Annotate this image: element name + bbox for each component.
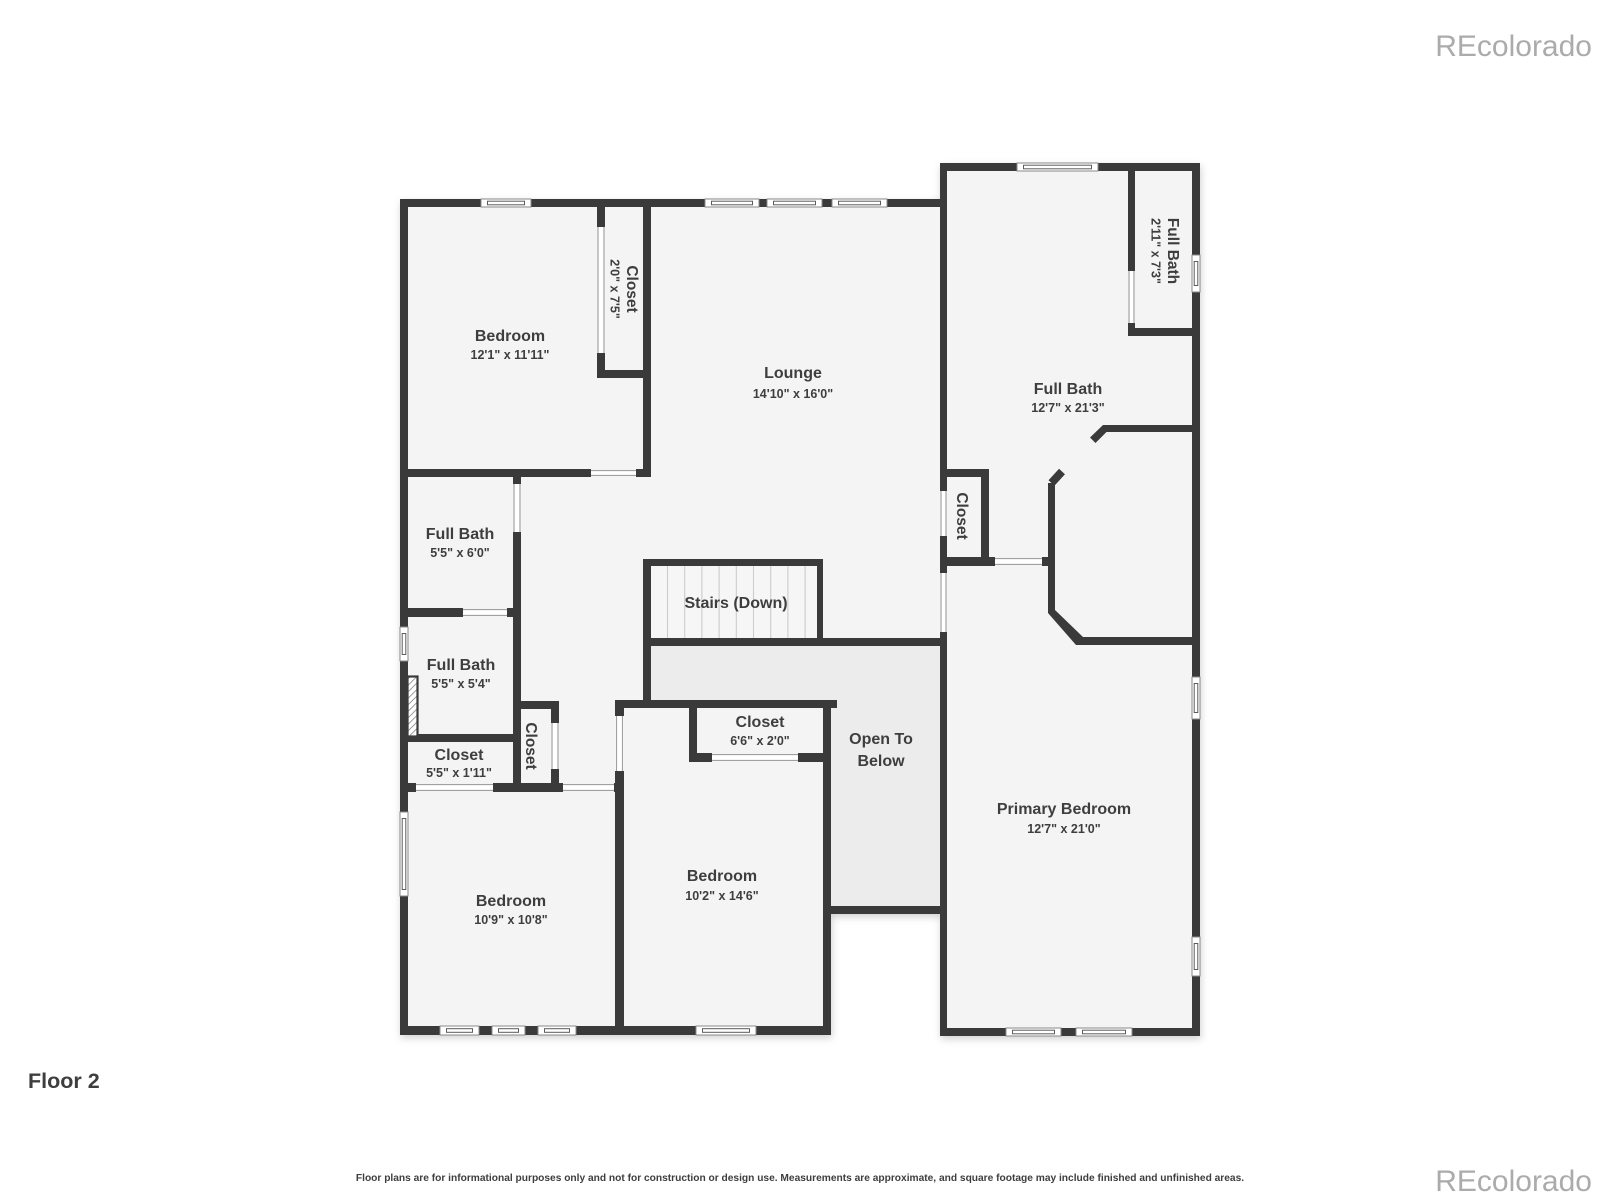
svg-text:5'5" x 1'11": 5'5" x 1'11" bbox=[426, 766, 492, 780]
svg-text:6'6" x 2'0": 6'6" x 2'0" bbox=[730, 734, 790, 748]
svg-text:2'11" x 7'3": 2'11" x 7'3" bbox=[1149, 218, 1163, 284]
svg-text:5'5" x 5'4": 5'5" x 5'4" bbox=[431, 677, 491, 691]
svg-text:Closet: Closet bbox=[623, 265, 640, 312]
svg-text:Closet: Closet bbox=[736, 714, 786, 731]
svg-text:12'1" x 11'11": 12'1" x 11'11" bbox=[471, 348, 550, 362]
svg-text:Bedroom: Bedroom bbox=[687, 868, 757, 885]
svg-text:Closet: Closet bbox=[435, 747, 485, 764]
svg-text:Full Bath: Full Bath bbox=[1034, 381, 1102, 398]
svg-text:12'7" x 21'0": 12'7" x 21'0" bbox=[1027, 822, 1100, 836]
svg-text:Full Bath: Full Bath bbox=[426, 526, 494, 543]
svg-text:Floor plans are for informatio: Floor plans are for informational purpos… bbox=[356, 1173, 1244, 1184]
svg-text:10'9" x 10'8": 10'9" x 10'8" bbox=[474, 913, 547, 927]
svg-text:Closet: Closet bbox=[522, 722, 539, 769]
svg-text:Bedroom: Bedroom bbox=[476, 893, 546, 910]
svg-text:Floor 2: Floor 2 bbox=[28, 1069, 100, 1093]
svg-text:Closet: Closet bbox=[953, 492, 970, 539]
svg-text:Below: Below bbox=[857, 753, 905, 770]
svg-text:Full Bath: Full Bath bbox=[427, 657, 495, 674]
svg-text:REcolorado: REcolorado bbox=[1435, 30, 1592, 63]
svg-text:2'0" x 7'5": 2'0" x 7'5" bbox=[608, 259, 622, 319]
svg-text:Open To: Open To bbox=[849, 731, 913, 748]
svg-text:Bedroom: Bedroom bbox=[475, 328, 545, 345]
svg-text:Primary Bedroom: Primary Bedroom bbox=[997, 801, 1131, 818]
svg-text:10'2" x 14'6": 10'2" x 14'6" bbox=[685, 889, 758, 903]
svg-text:14'10" x 16'0": 14'10" x 16'0" bbox=[753, 387, 833, 401]
svg-text:5'5" x 6'0": 5'5" x 6'0" bbox=[430, 546, 490, 560]
svg-text:12'7" x 21'3": 12'7" x 21'3" bbox=[1031, 401, 1104, 415]
svg-text:Stairs (Down): Stairs (Down) bbox=[684, 595, 787, 612]
svg-text:Lounge: Lounge bbox=[764, 365, 822, 382]
svg-text:REcolorado: REcolorado bbox=[1435, 1165, 1592, 1198]
svg-text:Full Bath: Full Bath bbox=[1164, 218, 1181, 284]
